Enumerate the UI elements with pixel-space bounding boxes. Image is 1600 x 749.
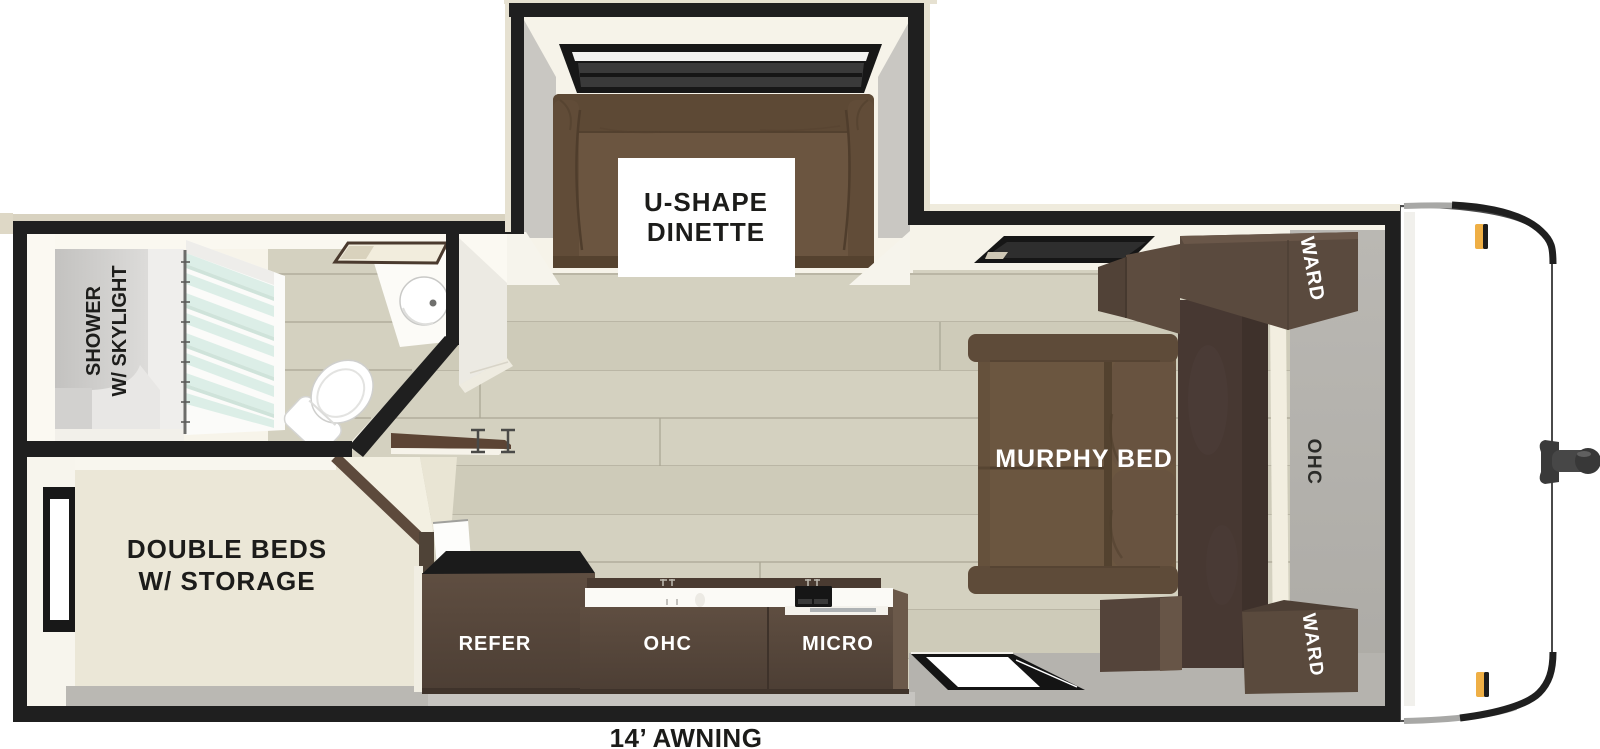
svg-text:U-SHAPE: U-SHAPE (644, 187, 768, 217)
svg-text:MURPHY BED: MURPHY BED (995, 445, 1173, 473)
svg-text:MICRO: MICRO (802, 633, 874, 655)
svg-text:REFER: REFER (459, 633, 532, 655)
svg-text:DINETTE: DINETTE (647, 217, 765, 247)
svg-text:W/ STORAGE: W/ STORAGE (138, 566, 315, 596)
svg-text:OHC: OHC (644, 633, 693, 655)
svg-text:DOUBLE BEDS: DOUBLE BEDS (127, 534, 327, 564)
svg-text:OHC: OHC (1303, 439, 1324, 486)
svg-text:14’ AWNING: 14’ AWNING (610, 723, 763, 749)
